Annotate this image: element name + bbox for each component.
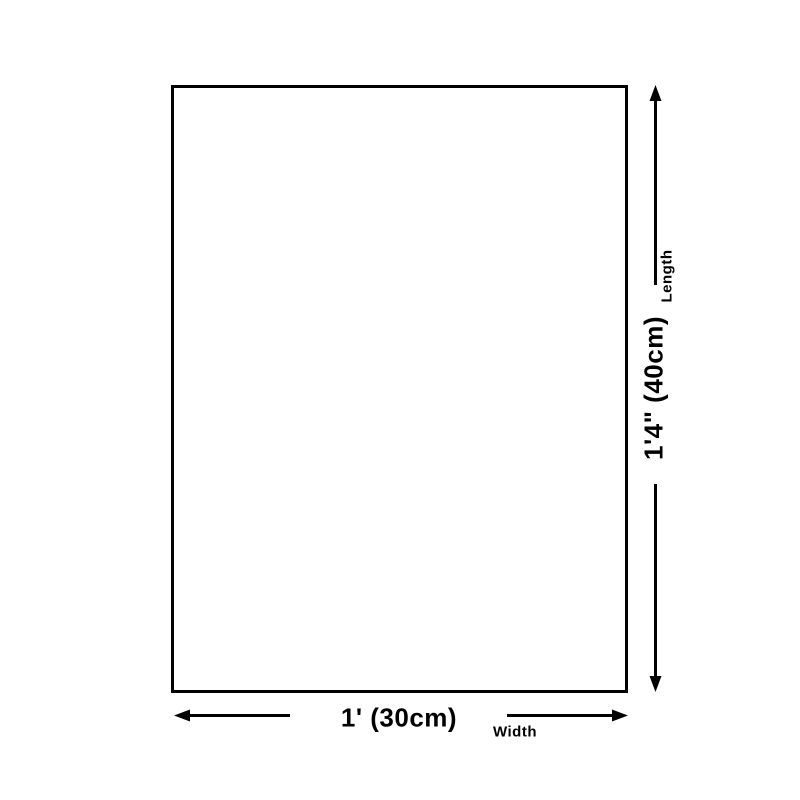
arrow-right-icon <box>612 710 628 722</box>
arrow-up-icon <box>650 85 662 101</box>
width-dimension-label: Width <box>493 724 537 741</box>
length-dimension-value: 1'4" (40cm) <box>639 316 670 460</box>
width-dimension-value: 1' (30cm) <box>341 703 457 734</box>
arrow-left-icon <box>174 710 190 722</box>
size-diagram: 1' (30cm) Width 1'4" (40cm) Length <box>0 0 800 800</box>
length-dimension-label: Length <box>659 250 676 303</box>
product-outline-rectangle <box>171 85 628 693</box>
arrow-down-icon <box>650 676 662 692</box>
